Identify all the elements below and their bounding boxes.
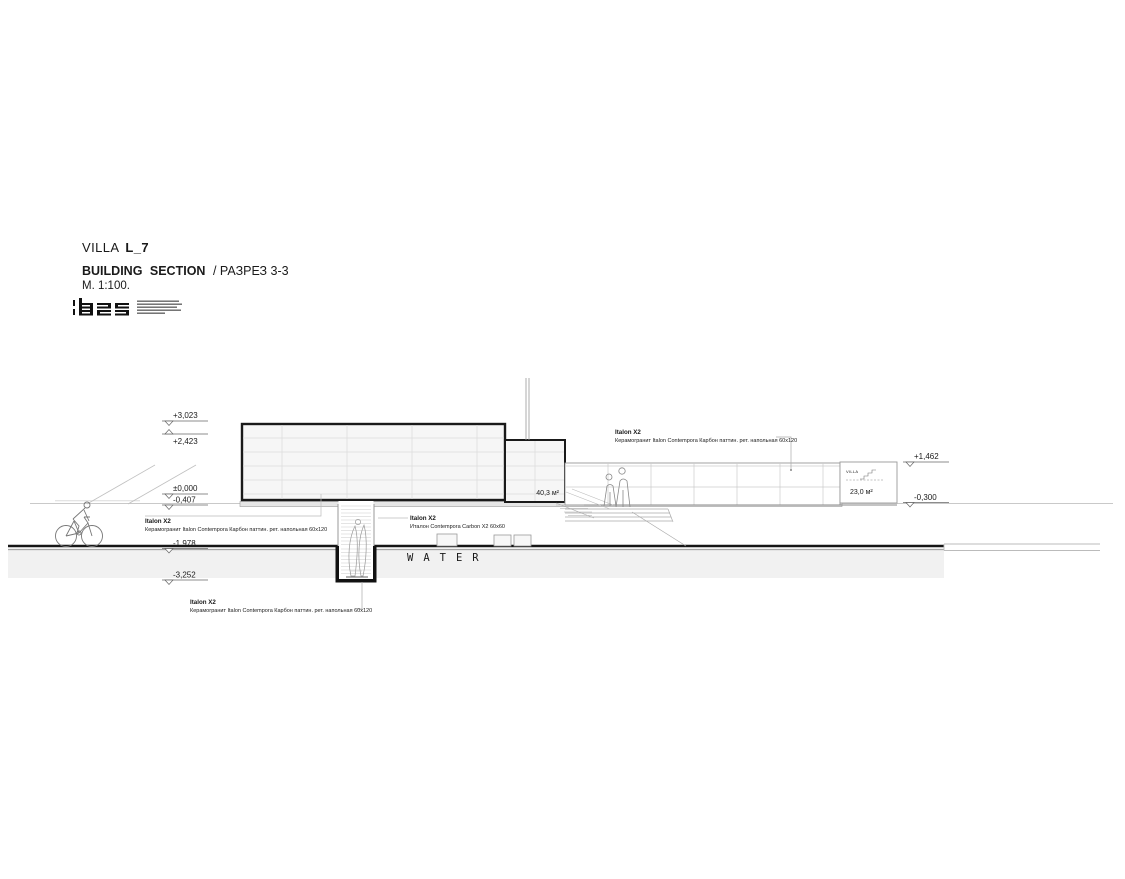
area-label-right: 23,0 м² xyxy=(850,489,873,496)
area-label-main: 40,3 м² xyxy=(536,490,559,497)
flagpole xyxy=(526,378,529,440)
svg-text:-1,978: -1,978 xyxy=(173,539,196,548)
svg-text:Керамогранит Italon Contempora: Керамогранит Italon Contempora Карбон па… xyxy=(190,608,372,614)
svg-text:+3,023: +3,023 xyxy=(173,411,198,420)
svg-text:+1,462: +1,462 xyxy=(914,452,939,461)
level-marker-roof: +3,023 xyxy=(162,411,208,426)
building-section-drawing: VILLA 23,0 м² xyxy=(0,0,1125,879)
svg-text:Italon X2: Italon X2 xyxy=(145,518,171,525)
svg-text:Italon X2: Italon X2 xyxy=(410,515,436,522)
drawing-sheet: VILLAL_7 BUILDING SECTION / РАЗРЕЗ 3-3 M… xyxy=(0,0,1125,879)
svg-text:-3,252: -3,252 xyxy=(173,571,196,580)
svg-text:Керамогранит Italon Contempora: Керамогранит Italon Contempora Карбон па… xyxy=(615,438,797,444)
svg-text:±0,000: ±0,000 xyxy=(173,484,198,493)
svg-text:-0,407: -0,407 xyxy=(173,496,196,505)
svg-text:Керамогранит Italon Contempora: Керамогранит Italon Contempora Карбон па… xyxy=(145,527,327,533)
villa-small-label: VILLA xyxy=(846,469,858,474)
svg-text:Италон Contempora Carbon X2 60: Италон Contempora Carbon X2 60x60 xyxy=(410,524,505,530)
pool-stools xyxy=(437,534,531,546)
main-building xyxy=(242,424,505,500)
right-end-box: VILLA 23,0 м² xyxy=(840,462,897,503)
level-marker-parapet: +2,423 xyxy=(162,430,208,447)
svg-text:-0,300: -0,300 xyxy=(914,493,937,502)
annotation-middle: Italon X2 Италон Contempora Carbon X2 60… xyxy=(378,515,505,530)
level-marker-right-roof: +1,462 xyxy=(903,452,949,467)
cyclist-figure xyxy=(56,502,103,547)
level-marker-right-ground: -0,300 xyxy=(903,493,949,507)
annotation-bottom: Italon X2 Керамогранит Italon Contempora… xyxy=(190,582,372,614)
water-label: WATER xyxy=(407,552,489,564)
svg-text:+2,423: +2,423 xyxy=(173,437,198,446)
svg-text:Italon X2: Italon X2 xyxy=(190,599,216,606)
svg-text:Italon X2: Italon X2 xyxy=(615,429,641,436)
staircase xyxy=(336,501,377,583)
